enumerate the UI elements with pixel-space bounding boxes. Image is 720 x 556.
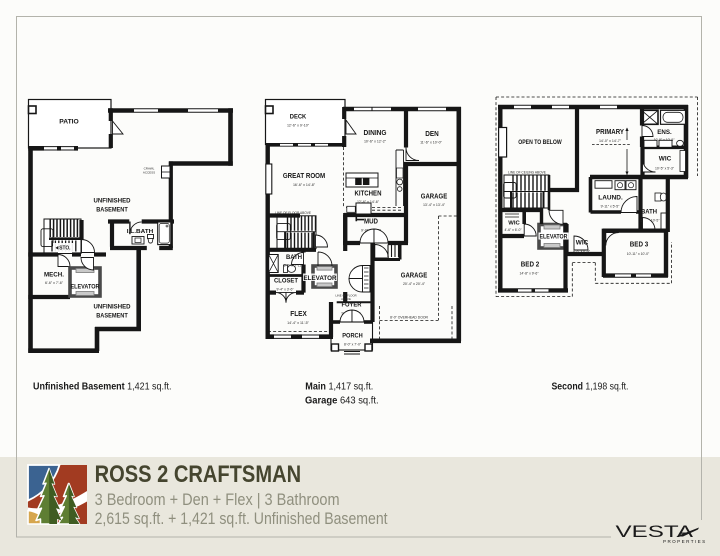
svg-text:ABOVE: ABOVE (341, 297, 351, 301)
svg-text:BASEMENT: BASEMENT (96, 313, 128, 320)
svg-text:WIC: WIC (508, 220, 520, 226)
svg-text:DECK: DECK (290, 113, 307, 120)
svg-text:BATH: BATH (286, 254, 302, 261)
svg-text:GREAT ROOM: GREAT ROOM (283, 171, 325, 180)
svg-text:8'-2" x 5'-11": 8'-2" x 5'-11" (284, 264, 304, 268)
svg-text:I.L.BATH: I.L.BATH (127, 229, 154, 235)
svg-text:ACCESS: ACCESS (143, 171, 155, 175)
svg-text:20'-4" x 20'-4": 20'-4" x 20'-4" (403, 282, 426, 286)
svg-text:3 Bedroom + Den + Flex | 3 Bat: 3 Bedroom + Den + Flex | 3 Bathroom (95, 491, 340, 509)
svg-text:CLOSET: CLOSET (274, 278, 298, 285)
svg-text:◄STO.: ◄STO. (55, 246, 71, 252)
svg-text:UNFINISHED: UNFINISHED (94, 197, 131, 204)
svg-text:WIC: WIC (576, 241, 589, 247)
svg-text:LAUND.: LAUND. (598, 194, 623, 201)
svg-text:6'-6" x 7'-6": 6'-6" x 7'-6" (45, 281, 64, 285)
svg-text:4'-6" x 6'-9": 4'-6" x 6'-9" (573, 250, 591, 254)
svg-text:Second 1,198 sq.ft.: Second 1,198 sq.ft. (552, 382, 629, 393)
svg-text:PORCH: PORCH (342, 332, 363, 339)
svg-text:10'-5" x 5'-3": 10'-5" x 5'-3" (655, 167, 675, 171)
svg-text:Main 1,417 sq.ft.: Main 1,417 sq.ft. (305, 382, 373, 393)
svg-text:13'-4" x 13'-4": 13'-4" x 13'-4" (423, 203, 446, 207)
svg-text:PROPERTIES: PROPERTIES (663, 539, 707, 544)
svg-text:ELEVATOR: ELEVATOR (71, 283, 100, 290)
svg-text:FOYER: FOYER (342, 302, 362, 309)
svg-text:BATH: BATH (641, 208, 657, 215)
svg-text:UNFINISHED: UNFINISHED (94, 303, 131, 310)
svg-text:2,615 sq.ft. + 1,421 sq.ft. Un: 2,615 sq.ft. + 1,421 sq.ft. Unfinished B… (95, 510, 388, 528)
svg-text:ENS.: ENS. (657, 129, 672, 136)
svg-text:10'-6" x 12'-2": 10'-6" x 12'-2" (364, 140, 387, 144)
svg-text:DINING: DINING (364, 130, 388, 137)
svg-text:MUD: MUD (364, 219, 378, 226)
svg-text:ELEVATOR: ELEVATOR (304, 275, 338, 282)
svg-text:WIC: WIC (659, 156, 672, 162)
svg-text:DEN: DEN (425, 131, 439, 138)
svg-text:12'-6" x 9'-10": 12'-6" x 9'-10" (287, 124, 310, 128)
svg-text:16'-6" x 14'-8": 16'-6" x 14'-8" (293, 183, 316, 187)
svg-text:BASEMENT: BASEMENT (96, 207, 128, 214)
svg-text:GARAGE: GARAGE (421, 193, 448, 200)
svg-text:ROSS 2 CRAFTSMAN: ROSS 2 CRAFTSMAN (95, 461, 302, 488)
svg-text:Garage 643 sq.ft.: Garage 643 sq.ft. (305, 395, 379, 406)
svg-text:FLEX: FLEX (290, 311, 307, 318)
svg-text:11'-6" x 10'-0": 11'-6" x 10'-0" (420, 141, 443, 145)
svg-text:8'-0" x 7'-0": 8'-0" x 7'-0" (344, 343, 362, 347)
svg-text:GARAGE: GARAGE (401, 272, 428, 279)
svg-text:4'-6" x 6'-0": 4'-6" x 6'-0" (504, 228, 522, 232)
svg-text:9'-4" x 3'-6": 9'-4" x 3'-6" (276, 288, 294, 292)
svg-text:10'-11" x 10'-0": 10'-11" x 10'-0" (627, 252, 650, 256)
svg-text:Unfinished Basement 1,421 sq.f: Unfinished Basement 1,421 sq.ft. (33, 382, 172, 393)
svg-text:14'-4" x 11'-5": 14'-4" x 11'-5" (287, 321, 310, 325)
svg-text:PATIO: PATIO (59, 118, 79, 125)
svg-text:PRIMARY: PRIMARY (596, 129, 624, 136)
svg-text:BED 2: BED 2 (521, 261, 540, 268)
svg-text:BED 3: BED 3 (630, 241, 649, 248)
svg-text:KITCHEN: KITCHEN (355, 190, 382, 197)
svg-text:9'-11" x 5'-5": 9'-11" x 5'-5" (601, 205, 621, 209)
svg-text:MECH.: MECH. (44, 271, 64, 278)
svg-text:ELEVATOR: ELEVATOR (540, 234, 569, 240)
svg-text:LINE OF CEILING ABOVE: LINE OF CEILING ABOVE (508, 171, 546, 175)
svg-text:OPEN TO BELOW: OPEN TO BELOW (518, 139, 562, 146)
svg-text:14'-8" x 9'-6": 14'-8" x 9'-6" (520, 272, 540, 276)
svg-text:14'-0" x 14'-7": 14'-0" x 14'-7" (599, 139, 622, 143)
svg-text:8'-0" OVERHEAD DOOR: 8'-0" OVERHEAD DOOR (390, 316, 428, 320)
